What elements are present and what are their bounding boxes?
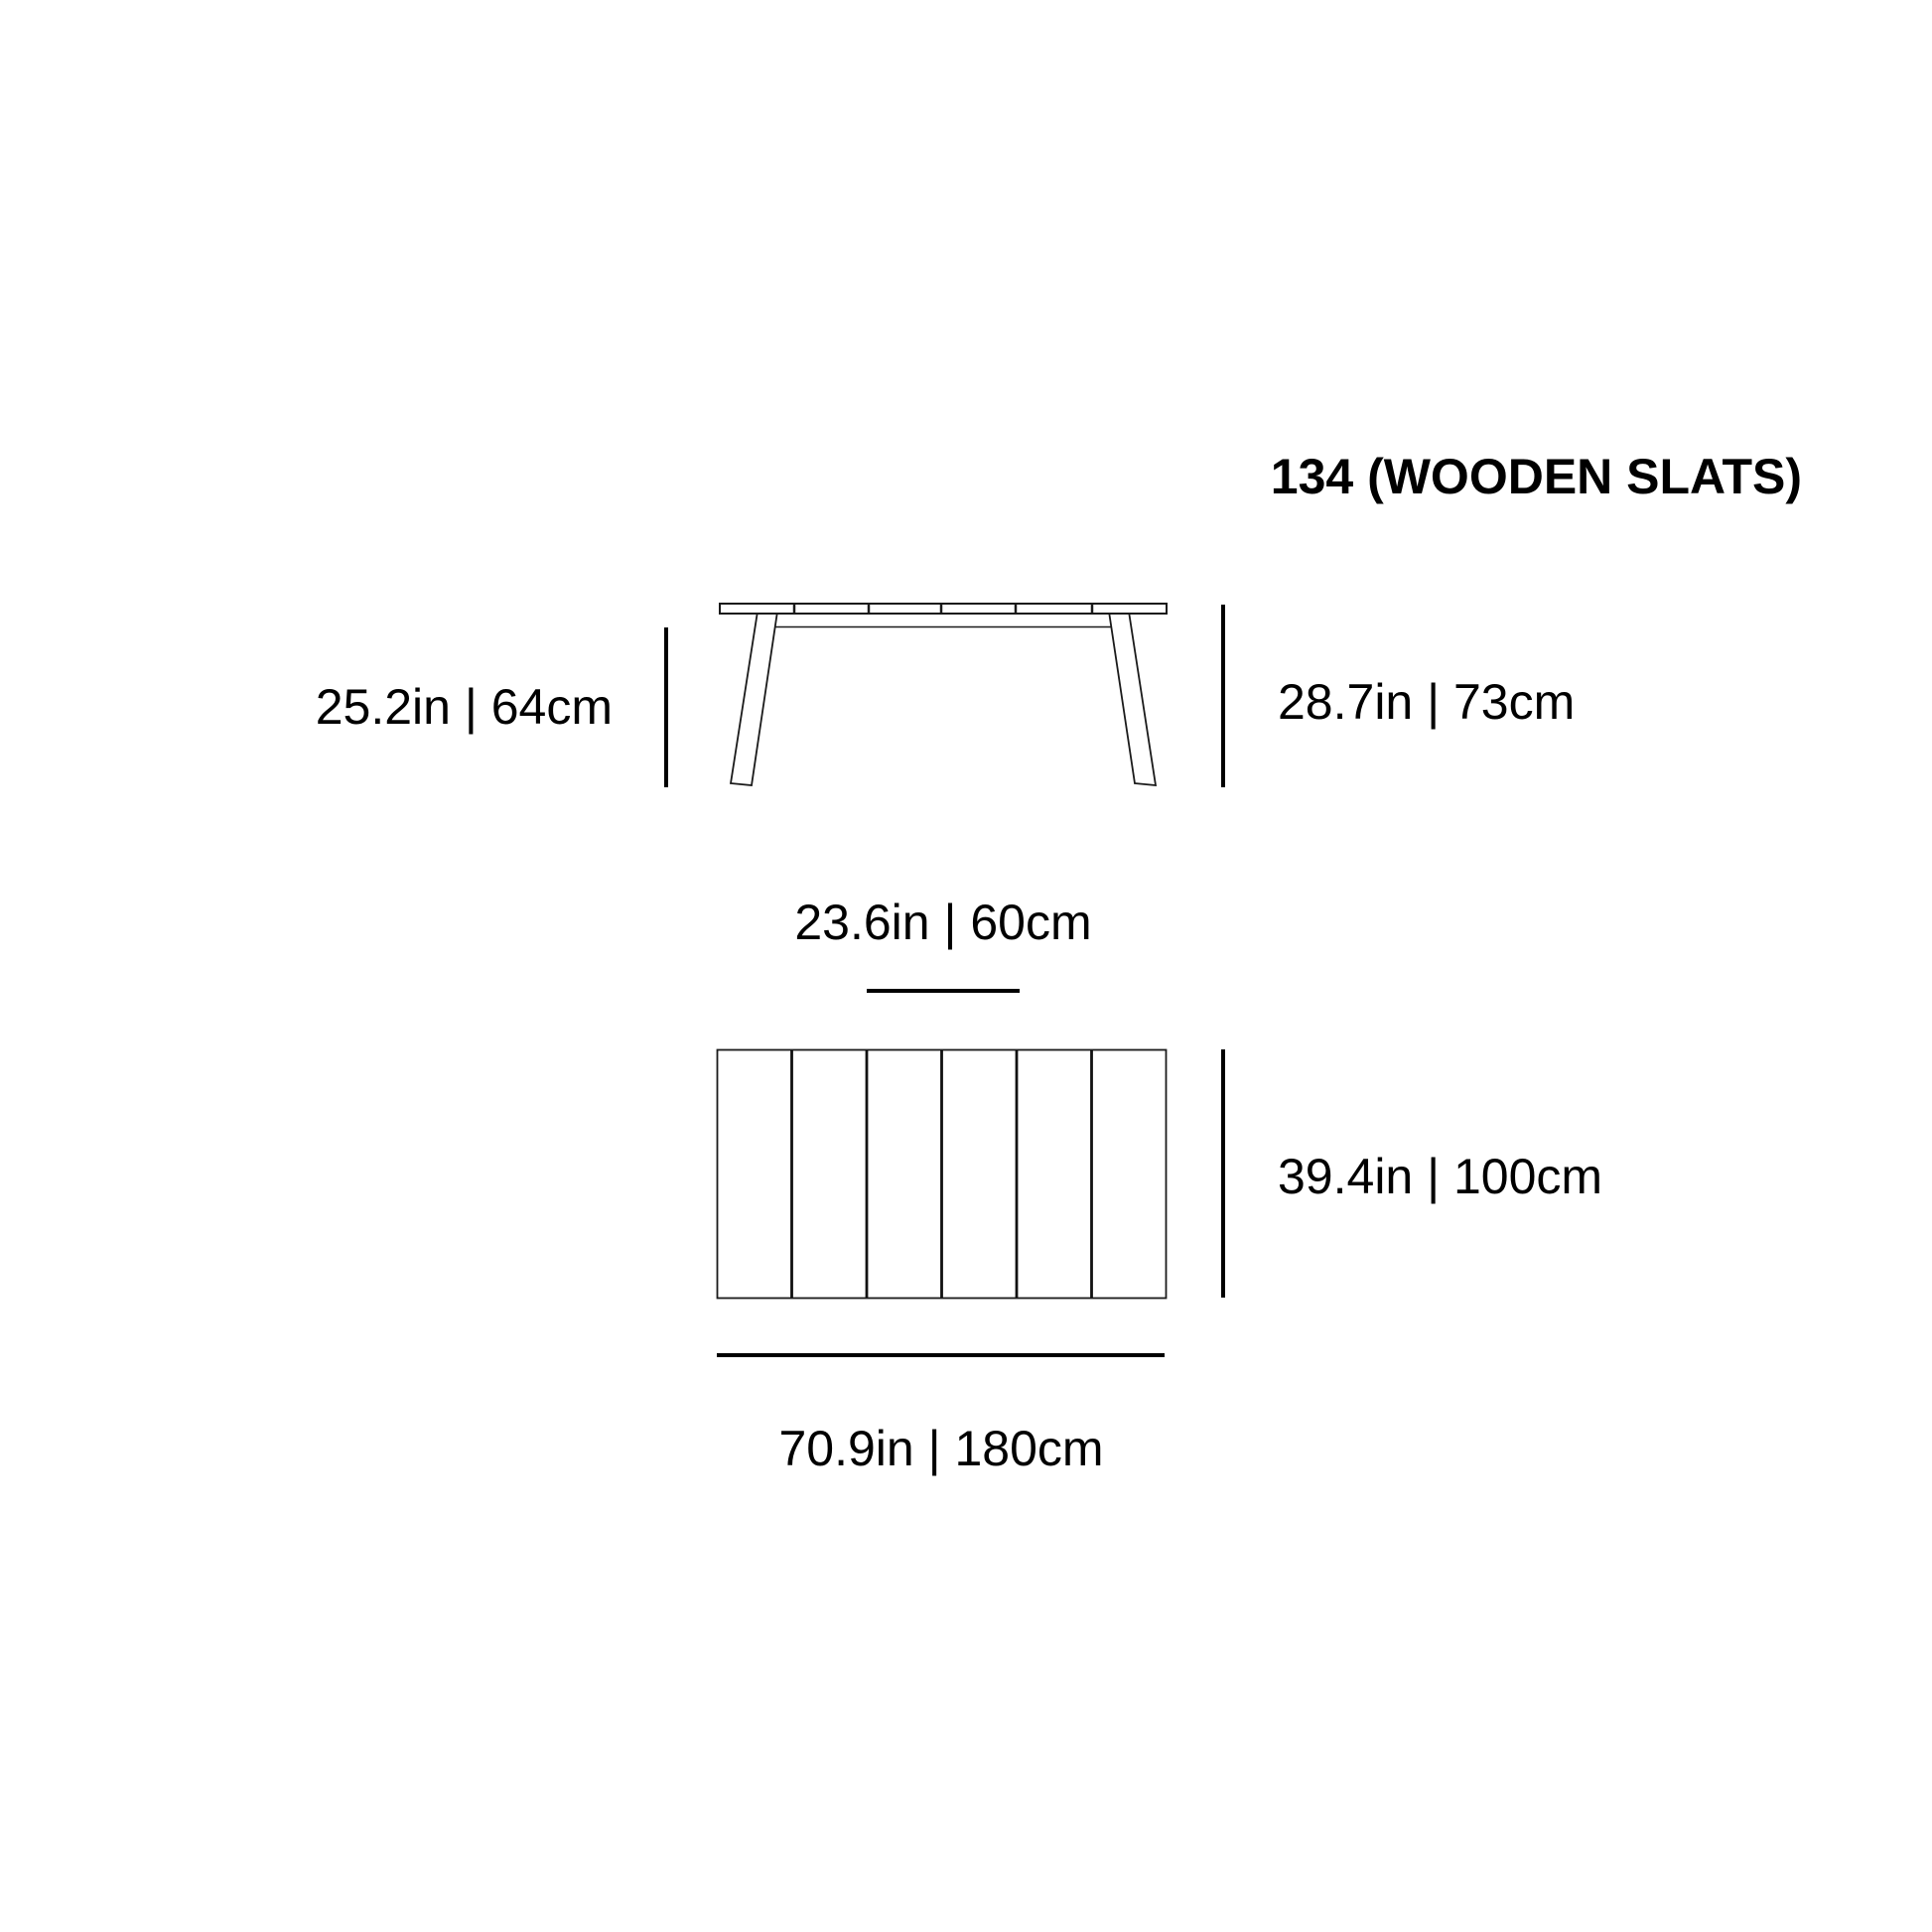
table-front-view [655, 576, 1211, 814]
dim-label-top-depth: 39.4in | 100cm [1278, 1152, 1602, 1201]
dim-line-slat-section-width [867, 989, 1020, 993]
table-top-view [695, 1033, 1191, 1320]
table-leg-left [731, 612, 777, 785]
dim-line-top-width [717, 1353, 1165, 1357]
dim-line-under-top-height [664, 627, 668, 787]
dim-label-top-width: 70.9in | 180cm [778, 1424, 1103, 1473]
dim-line-top-depth [1221, 1049, 1225, 1298]
dim-label-under-top-height: 25.2in | 64cm [316, 682, 613, 732]
dim-line-total-height [1221, 605, 1225, 787]
page-title: 134 (WOODEN SLATS) [1271, 452, 1802, 501]
table-leg-right [1109, 612, 1156, 785]
tabletop-edge [720, 604, 1167, 614]
dim-label-slat-section-width: 23.6in | 60cm [794, 897, 1091, 947]
dim-label-total-height: 28.7in | 73cm [1278, 677, 1575, 727]
dimension-sheet: 134 (WOODEN SLATS) 25.2in | 64cm 28.7in … [0, 0, 1932, 1932]
